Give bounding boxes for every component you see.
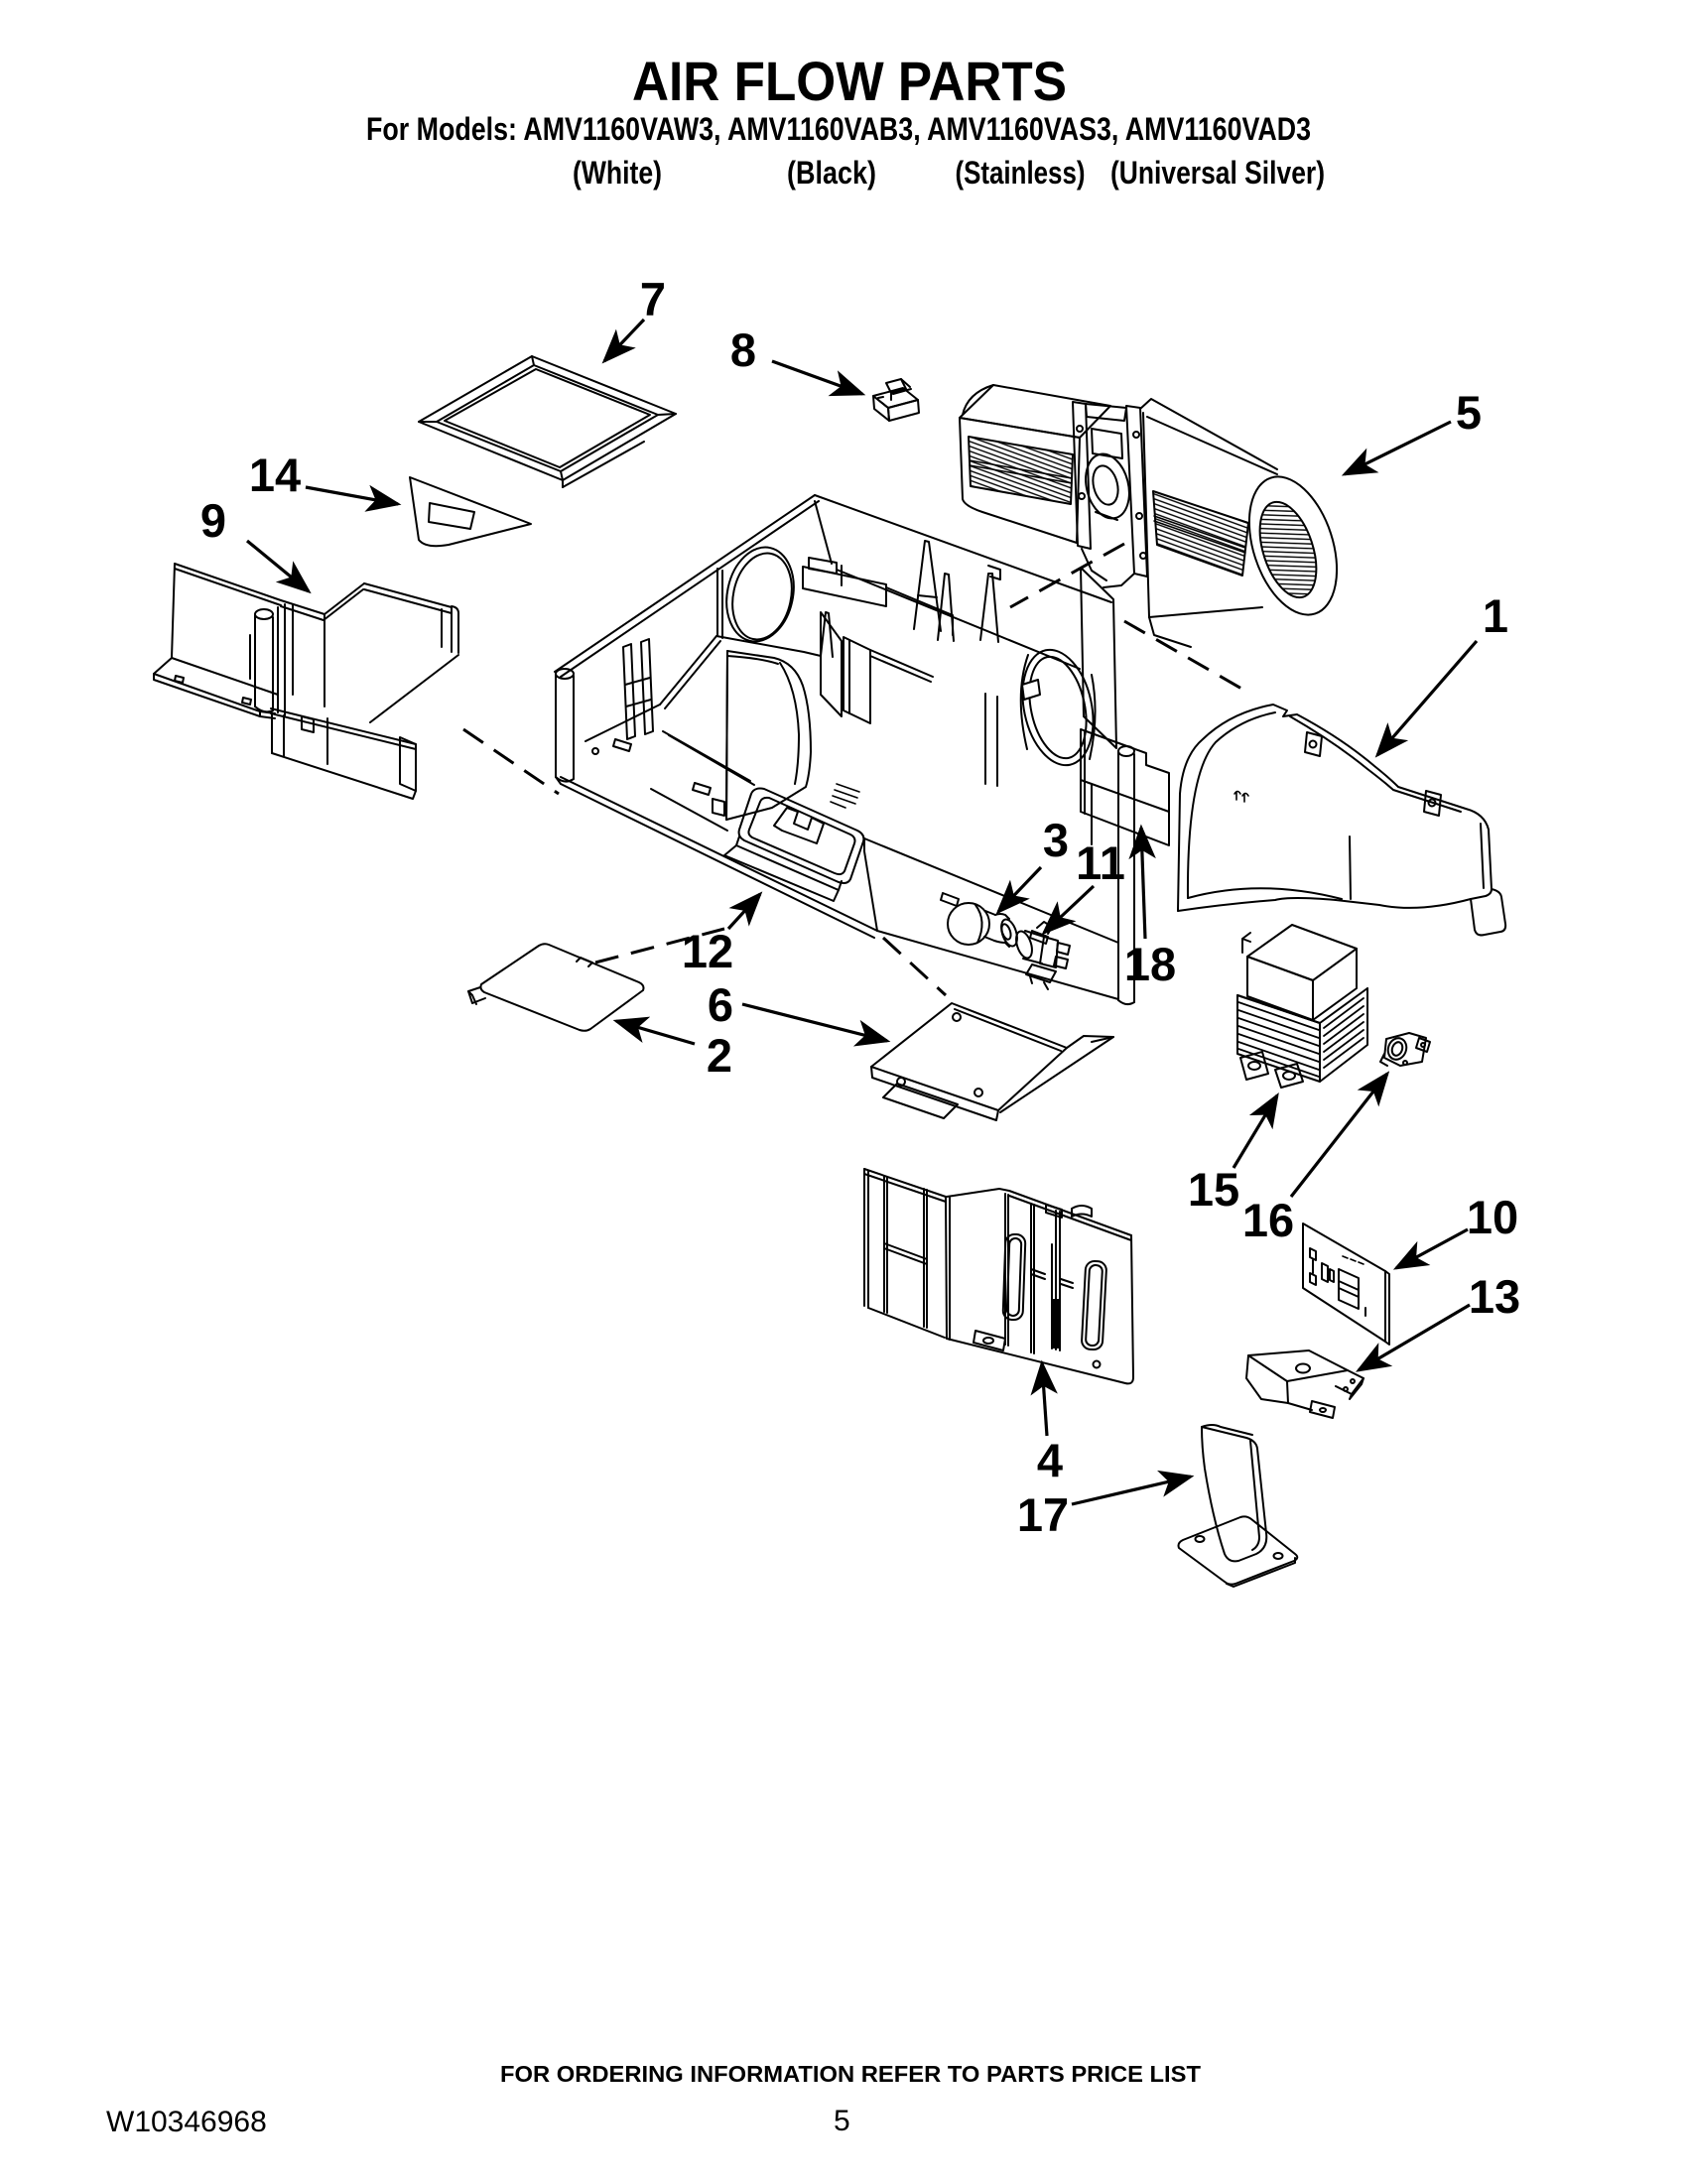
svg-text:8: 8 — [730, 323, 756, 376]
svg-text:AIR FLOW PARTS: AIR FLOW PARTS — [632, 50, 1067, 112]
svg-text:(Universal Silver): (Universal Silver) — [1110, 155, 1325, 191]
svg-text:5: 5 — [834, 2105, 850, 2137]
svg-text:14: 14 — [249, 449, 301, 501]
svg-text:3: 3 — [1043, 814, 1069, 866]
svg-text:6: 6 — [708, 978, 733, 1031]
svg-text:1: 1 — [1483, 589, 1508, 642]
svg-text:17: 17 — [1017, 1488, 1069, 1541]
svg-text:15: 15 — [1188, 1163, 1239, 1216]
svg-text:(White): (White) — [573, 155, 662, 191]
svg-text:4: 4 — [1037, 1434, 1063, 1486]
svg-text:FOR ORDERING INFORMATION REFER: FOR ORDERING INFORMATION REFER TO PARTS … — [500, 2061, 1201, 2087]
svg-text:W10346968: W10346968 — [106, 2106, 267, 2138]
svg-text:18: 18 — [1124, 938, 1176, 990]
svg-text:10: 10 — [1467, 1191, 1518, 1243]
svg-text:9: 9 — [200, 494, 226, 547]
svg-text:(Stainless): (Stainless) — [956, 155, 1086, 191]
svg-text:For Models: AMV1160VAW3, AMV11: For Models: AMV1160VAW3, AMV1160VAB3, AM… — [366, 111, 1311, 147]
svg-text:16: 16 — [1242, 1194, 1294, 1246]
svg-text:13: 13 — [1469, 1270, 1520, 1323]
svg-text:5: 5 — [1456, 386, 1482, 439]
svg-text:7: 7 — [640, 273, 666, 325]
svg-text:2: 2 — [707, 1029, 732, 1082]
svg-text:(Black): (Black) — [787, 155, 876, 191]
